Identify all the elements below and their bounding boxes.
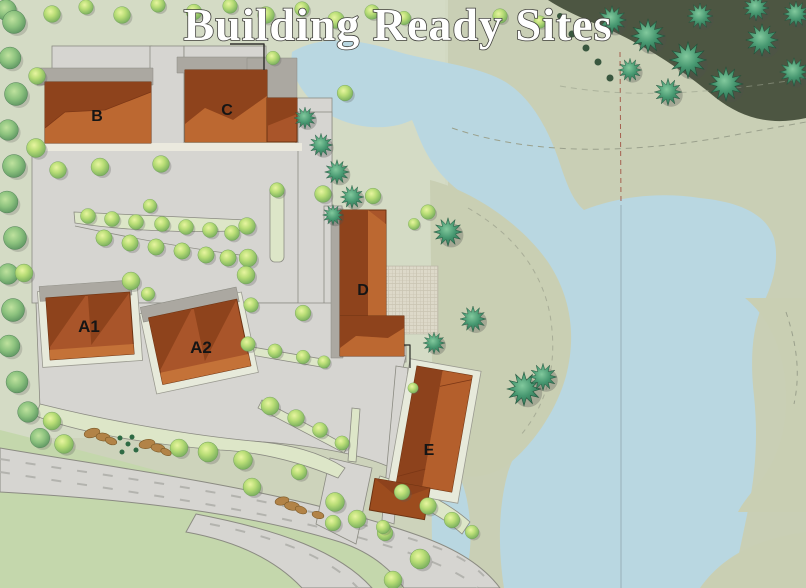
building-label-a1: A1 — [78, 317, 100, 336]
sidewalk-b-c — [32, 143, 302, 151]
building-label-a2: A2 — [190, 338, 212, 357]
building-label-b: B — [91, 108, 103, 125]
building-d-roof-light — [368, 210, 386, 316]
page-title: Building Ready Sites — [184, 0, 613, 50]
building-label-e: E — [424, 442, 435, 459]
drive-above-b — [52, 46, 152, 70]
site-plan-svg: B C D A1 A2 E Building Ready Sites — [0, 0, 806, 588]
building-c — [177, 57, 297, 142]
building-d-roof-dark — [340, 210, 368, 316]
site-plan-image: B C D A1 A2 E Building Ready Sites — [0, 0, 806, 588]
building-label-c: C — [221, 102, 233, 119]
building-b — [37, 68, 153, 143]
building-label-d: D — [357, 282, 369, 299]
